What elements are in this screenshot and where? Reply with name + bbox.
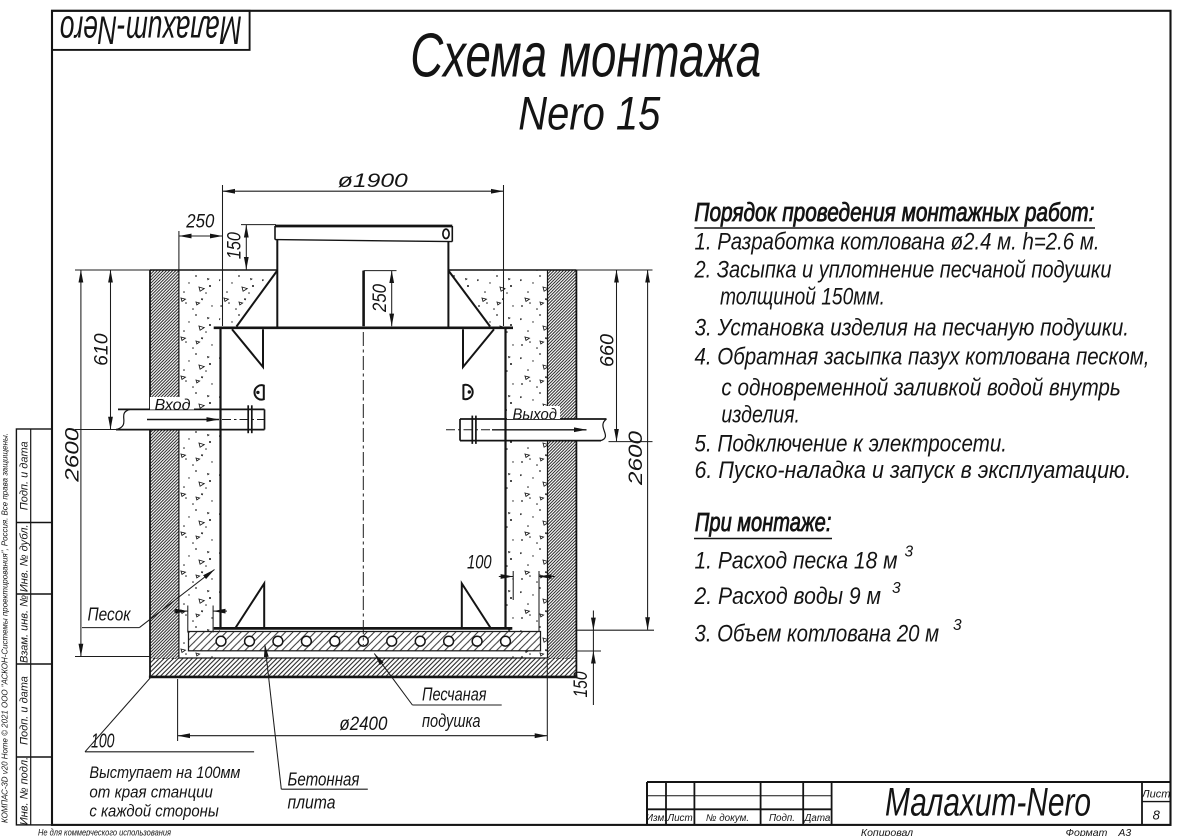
svg-text:Подп.: Подп. <box>769 813 795 824</box>
svg-text:ø2400: ø2400 <box>339 713 387 735</box>
svg-text:Изм.: Изм. <box>646 813 667 824</box>
svg-text:2. Расход воды 9 м: 2. Расход воды 9 м <box>694 583 881 610</box>
svg-text:4. Обратная засыпка пазух котл: 4. Обратная засыпка пазух котлована песк… <box>695 344 1150 371</box>
svg-text:2. Засыпка и уплотнение песчан: 2. Засыпка и уплотнение песчаной подушки <box>694 257 1112 284</box>
svg-text:150: 150 <box>570 671 592 697</box>
svg-text:Копировал: Копировал <box>861 827 913 836</box>
svg-text:3: 3 <box>892 580 901 597</box>
svg-text:150: 150 <box>224 232 246 259</box>
svg-text:с каждой стороны: с каждой стороны <box>89 802 219 821</box>
svg-text:Не для коммерческого использов: Не для коммерческого использования <box>38 828 171 836</box>
svg-text:610: 610 <box>91 333 113 366</box>
svg-text:Порядок проведения монтажных р: Порядок проведения монтажных работ: <box>694 199 1094 227</box>
svg-text:Бетонная: Бетонная <box>288 769 360 790</box>
svg-text:Инв. № подл.: Инв. № подл. <box>19 757 31 825</box>
svg-text:Песчаная: Песчаная <box>422 684 487 705</box>
svg-text:2600: 2600 <box>625 431 647 486</box>
svg-text:плита: плита <box>288 792 336 813</box>
svg-text:3. Объем котлована 20 м: 3. Объем котлована 20 м <box>695 621 940 648</box>
svg-text:Лист: Лист <box>666 813 692 824</box>
svg-text:3: 3 <box>953 617 962 634</box>
svg-text:Выступает на 100мм: Выступает на 100мм <box>89 763 240 782</box>
svg-text:Инв. № дубл.: Инв. № дубл. <box>19 524 31 592</box>
svg-text:Малахит-Nero: Малахит-Nero <box>885 781 1091 825</box>
svg-text:Выход: Выход <box>513 407 558 424</box>
svg-text:ø1900: ø1900 <box>338 170 408 192</box>
svg-text:250: 250 <box>185 211 214 233</box>
svg-text:5. Подключение к электросети.: 5. Подключение к электросети. <box>695 430 1008 457</box>
svg-text:Дата: Дата <box>803 813 830 824</box>
svg-text:3. Установка изделия на песчан: 3. Установка изделия на песчаную подушки… <box>695 315 1130 342</box>
svg-text:толщиной 150мм.: толщиной 150мм. <box>720 284 885 311</box>
svg-text:2600: 2600 <box>61 428 83 483</box>
svg-text:Подп. и дата: Подп. и дата <box>19 441 31 510</box>
svg-text:Формат: Формат <box>1066 827 1108 836</box>
svg-text:подушка: подушка <box>422 710 481 731</box>
svg-text:Взам. инв. №: Взам. инв. № <box>19 595 31 663</box>
svg-text:Схема монтажа: Схема монтажа <box>410 22 761 91</box>
svg-text:Песок: Песок <box>88 605 132 625</box>
svg-text:Nero 15: Nero 15 <box>518 87 661 140</box>
svg-text:6. Пуско-наладка и запуск в эк: 6. Пуско-наладка и запуск в эксплуатацию… <box>695 457 1132 484</box>
svg-text:А3: А3 <box>1117 827 1131 836</box>
svg-text:1. Расход песка 18 м: 1. Расход песка 18 м <box>695 548 898 575</box>
svg-text:3: 3 <box>905 544 914 561</box>
svg-text:от края станции: от края станции <box>89 782 213 801</box>
svg-text:Малахит-Nero: Малахит-Nero <box>60 8 242 52</box>
svg-text:100: 100 <box>91 731 115 753</box>
svg-text:100: 100 <box>467 552 492 574</box>
svg-text:При монтаже:: При монтаже: <box>695 509 832 537</box>
svg-text:с одновременной заливкой водой: с одновременной заливкой водой внутрь <box>721 375 1120 402</box>
svg-text:Подп. и дата: Подп. и дата <box>19 676 31 745</box>
svg-text:№ докум.: № докум. <box>706 813 749 824</box>
svg-text:изделия.: изделия. <box>721 402 800 429</box>
svg-text:1. Разработка котлована ø2.4 м: 1. Разработка котлована ø2.4 м. h=2.6 м. <box>695 229 1100 256</box>
svg-text:250: 250 <box>369 284 391 313</box>
svg-text:8: 8 <box>1153 808 1161 823</box>
svg-text:Лист: Лист <box>1141 789 1170 801</box>
svg-text:660: 660 <box>596 334 618 367</box>
svg-text:КОМПАС-3D v20 Home © 2021 ООО: КОМПАС-3D v20 Home © 2021 ООО "АСКОН-Сис… <box>1 433 10 823</box>
svg-text:Вход: Вход <box>155 397 191 414</box>
